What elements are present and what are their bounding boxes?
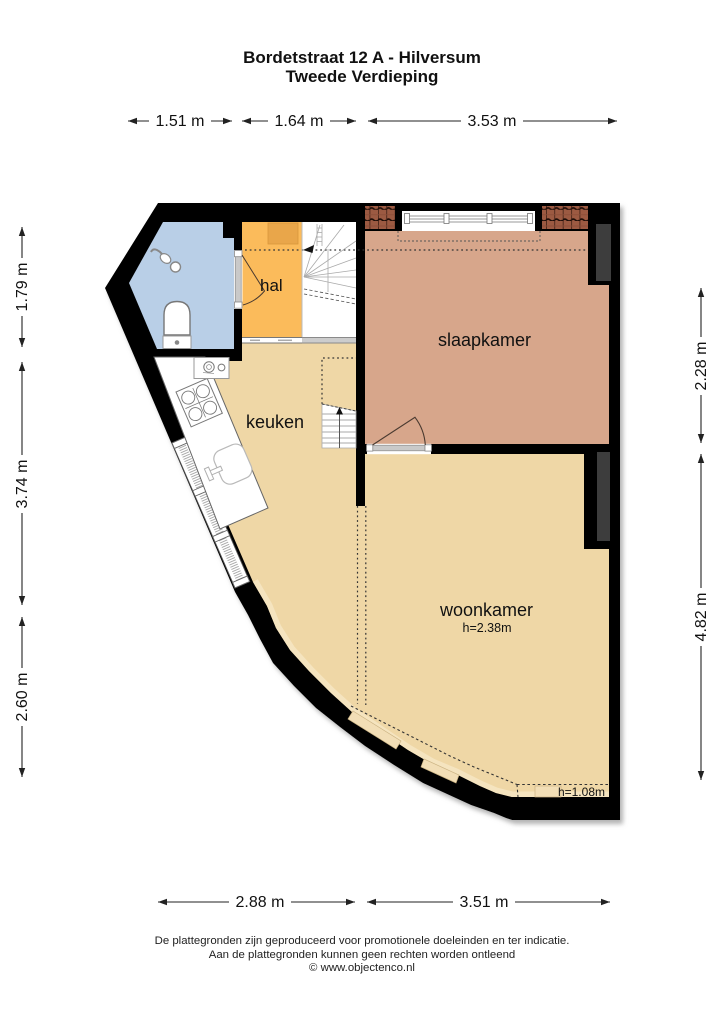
svg-text:woonkamer: woonkamer (439, 600, 533, 620)
svg-text:Tweede Verdieping: Tweede Verdieping (286, 67, 439, 86)
svg-text:3.53 m: 3.53 m (468, 113, 517, 130)
svg-text:Bordetstraat 12 A - Hilversum: Bordetstraat 12 A - Hilversum (243, 48, 481, 67)
svg-text:2.88 m: 2.88 m (236, 894, 285, 911)
svg-text:3.51 m: 3.51 m (460, 894, 509, 911)
svg-text:2.60 m: 2.60 m (14, 673, 31, 722)
svg-text:1.64 m: 1.64 m (275, 113, 324, 130)
svg-text:De plattegronden zijn geproduc: De plattegronden zijn geproduceerd voor … (155, 935, 570, 947)
svg-text:4.82 m: 4.82 m (693, 593, 710, 642)
svg-text:2.28 m: 2.28 m (693, 342, 710, 391)
svg-text:3.74 m: 3.74 m (14, 460, 31, 509)
svg-text:1.79 m: 1.79 m (14, 263, 31, 312)
svg-text:h=2.38m: h=2.38m (463, 621, 512, 635)
svg-text:1.51 m: 1.51 m (156, 113, 205, 130)
svg-text:Aan de plattegronden kunnen ge: Aan de plattegronden kunnen geen rechten… (209, 949, 516, 961)
svg-text:hal: hal (260, 276, 283, 295)
svg-text:© www.objectenco.nl: © www.objectenco.nl (309, 962, 415, 974)
svg-text:h=1.08m: h=1.08m (558, 785, 605, 799)
svg-text:slaapkamer: slaapkamer (438, 330, 531, 350)
svg-text:keuken: keuken (246, 412, 304, 432)
